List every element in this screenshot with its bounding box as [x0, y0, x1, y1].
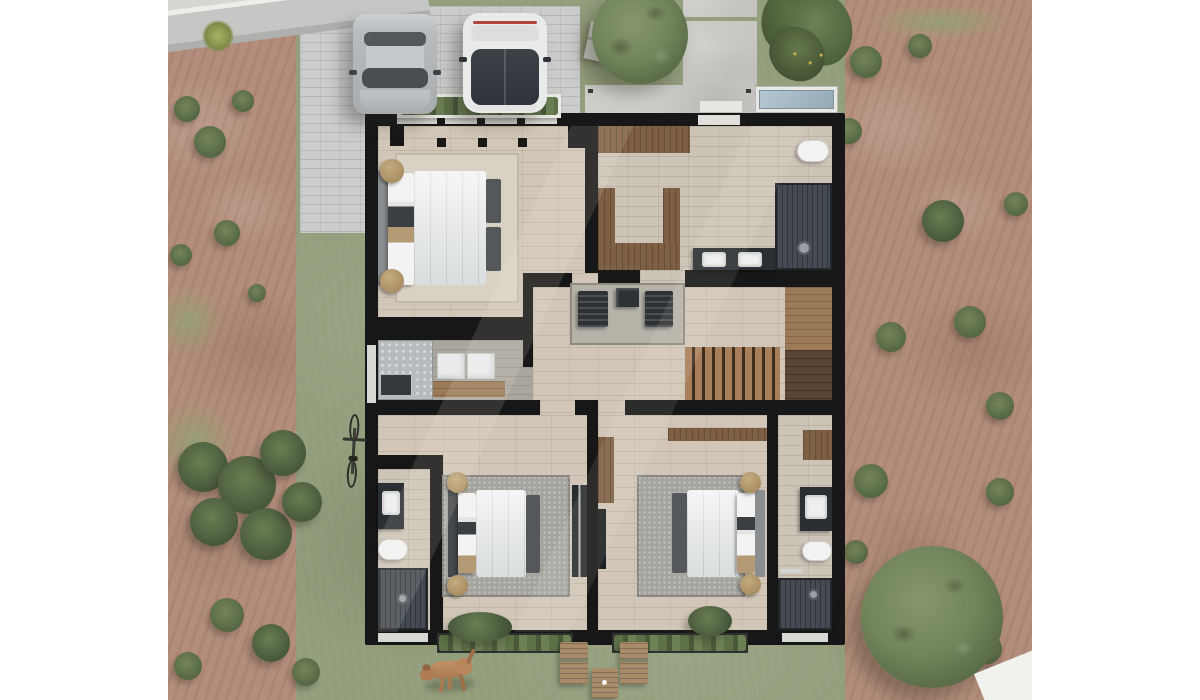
shower-bathroom3: [778, 578, 832, 630]
shrub: [190, 498, 238, 546]
bush: [954, 306, 986, 338]
bush: [292, 658, 320, 686]
window-mullion: [437, 138, 446, 147]
bush: [174, 652, 202, 680]
car-rear-window: [364, 32, 426, 46]
closet-cabinet-top: [598, 126, 690, 153]
laundry-mat: [381, 375, 411, 395]
dryer: [467, 353, 495, 379]
shrub: [282, 482, 322, 522]
car-hood-strip: [473, 105, 537, 111]
pouf: [447, 472, 468, 493]
render-canvas: [0, 0, 1200, 700]
staircase: [685, 347, 780, 400]
car-mirror: [459, 57, 467, 62]
car-mirror: [349, 70, 357, 75]
wall-stub: [568, 126, 592, 148]
silver-sedan: [353, 14, 437, 114]
bush: [854, 464, 888, 498]
washer: [437, 353, 465, 379]
bush: [170, 244, 192, 266]
house-floor-plan: [365, 113, 845, 645]
car-tail-lights: [473, 21, 537, 24]
sink: [382, 491, 400, 515]
lounger-hinge: [560, 659, 588, 662]
bed-master-headboard: [378, 171, 388, 285]
desk-bedroom3-top: [668, 428, 767, 441]
bed3-foot-bench: [672, 493, 687, 573]
bed-master-foot-cushion: [486, 179, 501, 223]
bush: [194, 126, 226, 158]
dog-ear: [422, 664, 430, 671]
car-roof: [366, 46, 424, 68]
stair-upper-deck: [785, 287, 832, 350]
rear-yard-tree: [861, 546, 1003, 688]
pouf: [740, 472, 761, 493]
bush: [986, 478, 1014, 506]
tv-panel-bedroom3: [598, 509, 606, 569]
grass-patch: [865, 4, 1015, 40]
bush: [908, 34, 932, 58]
door-laundry: [523, 367, 533, 400]
toilet-master: [797, 140, 829, 162]
sink: [702, 252, 726, 267]
sink: [738, 252, 762, 267]
laundry-counter: [433, 381, 505, 397]
dog: [416, 646, 479, 700]
shrub: [240, 508, 292, 560]
pouf: [380, 269, 404, 293]
front-door: [698, 115, 740, 125]
wooden-lounger: [560, 642, 588, 684]
cup: [602, 680, 607, 685]
shower-master: [775, 183, 832, 270]
door-bedroom3: [598, 400, 625, 415]
bush: [174, 96, 200, 122]
wardrobe-bedroom2: [572, 485, 587, 577]
shrub: [260, 430, 306, 476]
wooden-lounger: [620, 642, 648, 684]
door-bedroom2: [540, 400, 575, 415]
stair-landing: [785, 350, 832, 400]
shower-head: [797, 241, 811, 255]
bed3-pillows: [737, 493, 755, 573]
bed-master-duvet: [414, 171, 486, 285]
bush: [850, 46, 882, 78]
window-mullion: [478, 138, 487, 147]
easy-chair: [645, 291, 673, 327]
desk-bedroom3-side: [598, 437, 614, 503]
wall-stub: [390, 126, 404, 146]
bicycle-handlebar: [343, 437, 367, 441]
car-hood: [360, 90, 430, 110]
shower-drain: [397, 593, 408, 604]
shrub: [922, 200, 964, 242]
pouf: [380, 159, 404, 183]
grass-patch: [168, 286, 224, 356]
car-rear-deck: [471, 25, 539, 41]
bush: [1004, 192, 1028, 216]
towel-rail: [780, 569, 802, 573]
tropical-flowers: [786, 46, 830, 72]
bed3-duvet: [687, 490, 739, 577]
foliage-tuft: [448, 612, 512, 642]
bed3-headboard: [755, 490, 765, 577]
walkin-closet-bottom: [610, 243, 680, 270]
bush: [876, 322, 906, 352]
sink: [805, 495, 827, 519]
window-mullion: [518, 138, 527, 147]
car-mirror: [543, 57, 551, 62]
bed2-headboard: [448, 490, 458, 577]
palm-plant: [196, 14, 240, 58]
window-bathroom3-bottom: [782, 633, 828, 642]
bush: [986, 392, 1014, 420]
bed-master-foot-cushion: [486, 227, 501, 271]
bed2-duvet: [476, 490, 526, 577]
bicycle: [338, 413, 370, 490]
pouf: [740, 574, 761, 595]
bed2-foot-bench: [526, 495, 540, 573]
car-mirror: [433, 70, 441, 75]
side-table-hall: [616, 288, 639, 307]
bush: [248, 284, 266, 302]
bed2-pillows: [458, 493, 476, 573]
walkin-closet-right: [663, 188, 680, 243]
toilet-bathroom2: [378, 539, 408, 560]
toilet-bathroom3: [802, 541, 832, 561]
bush: [232, 90, 254, 112]
lounger-hinge: [620, 659, 648, 662]
shower-drain: [808, 589, 819, 600]
bush: [844, 540, 868, 564]
white-car: [463, 13, 547, 113]
foliage-tuft: [688, 606, 732, 636]
easy-chair: [578, 291, 608, 327]
site-plan-scene: [168, 0, 1032, 700]
car-windshield: [362, 68, 428, 88]
tropical-plants: [760, 0, 852, 84]
pouf: [447, 575, 468, 596]
bush: [214, 220, 240, 246]
bicycle-seat: [349, 456, 358, 461]
dog-leg: [447, 677, 451, 690]
floor-bedroom2-entry: [378, 415, 443, 455]
shrub: [252, 624, 290, 662]
car-glass-seam: [504, 49, 506, 105]
bush: [210, 598, 244, 632]
window-bathroom2-bottom: [378, 633, 428, 642]
shelf-bathroom3: [803, 430, 832, 460]
wooden-side-table: [592, 668, 618, 698]
window-laundry-left: [367, 345, 376, 403]
